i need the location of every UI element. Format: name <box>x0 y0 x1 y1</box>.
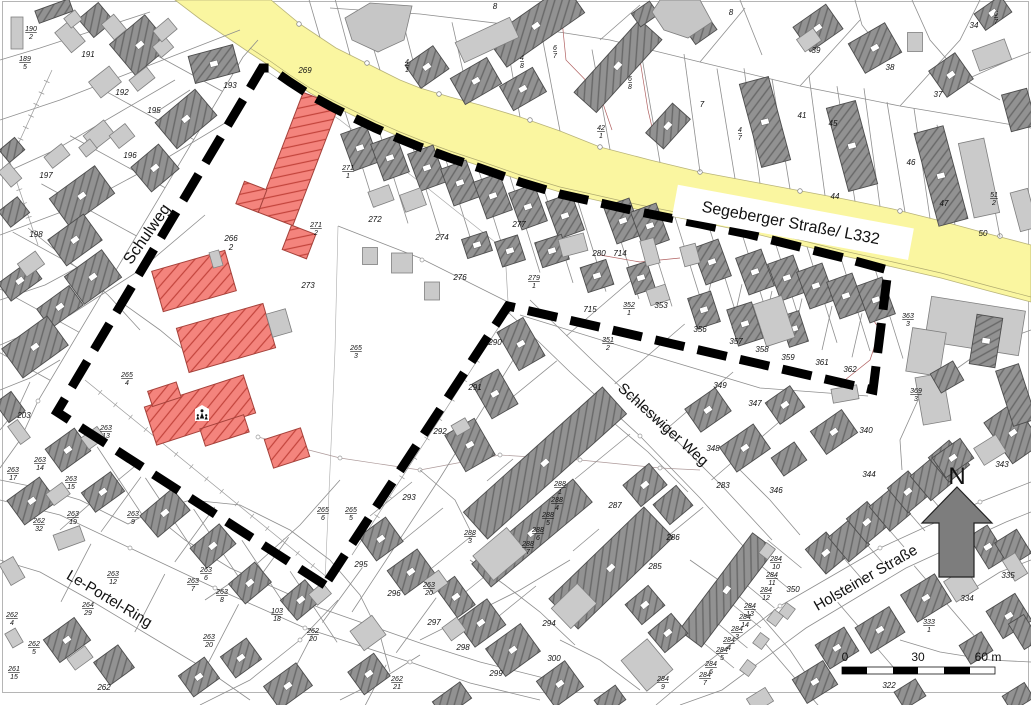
svg-text:3: 3 <box>914 396 918 403</box>
svg-text:357: 357 <box>729 337 743 346</box>
svg-text:197: 197 <box>39 171 53 180</box>
svg-text:10: 10 <box>772 564 780 571</box>
svg-text:358: 358 <box>755 345 769 354</box>
svg-text:41: 41 <box>798 111 807 120</box>
svg-text:284: 284 <box>656 676 669 683</box>
svg-text:9: 9 <box>661 684 665 691</box>
svg-text:362: 362 <box>843 365 857 374</box>
svg-text:1: 1 <box>532 283 536 290</box>
svg-text:715: 715 <box>583 305 597 314</box>
svg-text:38: 38 <box>886 63 895 72</box>
svg-text:284: 284 <box>715 647 728 654</box>
svg-text:6: 6 <box>994 11 998 18</box>
svg-text:299: 299 <box>488 669 503 678</box>
svg-text:284: 284 <box>743 603 756 610</box>
svg-text:3: 3 <box>468 538 472 545</box>
svg-text:274: 274 <box>434 233 449 242</box>
svg-text:277: 277 <box>511 220 526 229</box>
svg-text:196: 196 <box>123 151 137 160</box>
svg-text:273: 273 <box>300 281 315 290</box>
svg-text:263: 263 <box>66 511 79 518</box>
svg-text:288: 288 <box>553 481 566 488</box>
svg-text:271: 271 <box>341 165 354 172</box>
svg-text:198: 198 <box>29 230 43 239</box>
svg-text:30: 30 <box>911 650 925 664</box>
svg-text:5: 5 <box>349 515 353 522</box>
svg-text:192: 192 <box>115 88 129 97</box>
svg-text:262: 262 <box>306 628 319 635</box>
svg-text:283: 283 <box>715 481 730 490</box>
svg-text:4: 4 <box>738 127 742 134</box>
svg-text:2: 2 <box>605 345 610 352</box>
svg-text:1: 1 <box>599 133 603 140</box>
svg-text:8: 8 <box>220 597 224 604</box>
svg-text:284: 284 <box>765 572 778 579</box>
svg-text:21: 21 <box>392 684 401 691</box>
svg-text:6: 6 <box>536 535 540 542</box>
svg-text:348: 348 <box>706 444 720 453</box>
svg-text:266: 266 <box>223 234 238 243</box>
svg-text:20: 20 <box>308 636 317 643</box>
svg-text:203: 203 <box>16 411 31 420</box>
svg-text:263: 263 <box>64 476 77 483</box>
svg-text:6: 6 <box>321 515 325 522</box>
svg-text:333: 333 <box>923 619 935 626</box>
svg-text:5: 5 <box>23 64 27 71</box>
svg-text:350: 350 <box>786 585 800 594</box>
svg-text:4: 4 <box>520 55 524 62</box>
svg-text:32: 32 <box>35 526 43 533</box>
svg-text:298: 298 <box>455 643 470 652</box>
svg-text:286: 286 <box>665 533 680 542</box>
svg-text:2: 2 <box>991 200 996 207</box>
svg-text:284: 284 <box>738 614 751 621</box>
svg-text:284: 284 <box>759 587 772 594</box>
svg-text:1: 1 <box>627 310 631 317</box>
svg-text:3: 3 <box>354 353 358 360</box>
svg-text:263: 263 <box>422 582 435 589</box>
svg-text:290: 290 <box>487 338 502 347</box>
svg-text:42: 42 <box>597 125 605 132</box>
svg-text:44: 44 <box>831 192 840 201</box>
svg-text:262: 262 <box>27 641 40 648</box>
svg-text:369: 369 <box>910 388 922 395</box>
svg-text:714: 714 <box>613 249 627 258</box>
svg-text:47: 47 <box>940 199 949 208</box>
svg-text:2: 2 <box>313 230 318 237</box>
svg-text:288: 288 <box>463 530 476 537</box>
svg-text:3: 3 <box>735 634 739 641</box>
svg-text:262: 262 <box>32 518 45 525</box>
svg-text:263: 263 <box>33 457 46 464</box>
svg-text:17: 17 <box>9 475 18 482</box>
svg-text:20: 20 <box>424 590 433 597</box>
svg-text:50: 50 <box>979 229 988 238</box>
svg-text:19: 19 <box>69 519 77 526</box>
svg-text:3: 3 <box>906 321 910 328</box>
svg-text:2: 2 <box>28 34 33 41</box>
svg-text:189: 189 <box>19 56 31 63</box>
svg-text:296: 296 <box>386 589 401 598</box>
svg-text:265: 265 <box>344 507 357 514</box>
svg-text:190: 190 <box>25 26 37 33</box>
svg-text:5: 5 <box>546 520 550 527</box>
svg-text:352: 352 <box>623 302 635 309</box>
svg-text:6: 6 <box>204 575 208 582</box>
svg-text:300: 300 <box>547 654 561 663</box>
svg-text:9: 9 <box>131 519 135 526</box>
svg-text:359: 359 <box>781 353 795 362</box>
svg-text:15: 15 <box>10 674 18 681</box>
svg-text:103: 103 <box>271 608 283 615</box>
svg-text:1: 1 <box>927 627 931 634</box>
svg-text:349: 349 <box>713 381 727 390</box>
svg-text:60 m: 60 m <box>975 650 1002 664</box>
svg-text:0: 0 <box>842 650 849 664</box>
svg-text:269: 269 <box>297 66 312 75</box>
svg-text:6: 6 <box>628 76 632 83</box>
svg-text:14: 14 <box>36 465 44 472</box>
svg-text:8: 8 <box>520 63 524 70</box>
svg-text:8: 8 <box>493 2 498 11</box>
svg-text:265: 265 <box>316 507 329 514</box>
svg-text:280: 280 <box>591 249 606 258</box>
svg-text:361: 361 <box>815 358 828 367</box>
svg-text:279: 279 <box>527 275 540 282</box>
svg-text:195: 195 <box>147 106 161 115</box>
svg-text:285: 285 <box>647 562 662 571</box>
svg-text:11: 11 <box>768 580 775 587</box>
svg-text:291: 291 <box>467 383 481 392</box>
svg-text:265: 265 <box>349 345 362 352</box>
svg-text:5: 5 <box>720 655 724 662</box>
svg-text:363: 363 <box>902 313 914 320</box>
svg-text:272: 272 <box>367 215 382 224</box>
svg-text:20: 20 <box>204 642 213 649</box>
svg-text:15: 15 <box>67 484 75 491</box>
svg-text:347: 347 <box>748 399 762 408</box>
svg-text:2: 2 <box>228 243 234 252</box>
svg-text:263: 263 <box>186 578 199 585</box>
svg-text:284: 284 <box>704 661 717 668</box>
svg-text:343: 343 <box>995 460 1009 469</box>
svg-text:34: 34 <box>970 21 979 30</box>
svg-text:264: 264 <box>81 602 94 609</box>
svg-text:288: 288 <box>531 527 544 534</box>
svg-text:322: 322 <box>882 681 896 690</box>
svg-text:13: 13 <box>102 433 110 440</box>
svg-text:265: 265 <box>120 372 133 379</box>
svg-text:193: 193 <box>223 81 237 90</box>
svg-text:356: 356 <box>693 325 707 334</box>
svg-text:263: 263 <box>202 634 215 641</box>
svg-text:284: 284 <box>722 637 735 644</box>
svg-text:261: 261 <box>7 666 20 673</box>
svg-text:293: 293 <box>401 493 416 502</box>
svg-text:292: 292 <box>432 427 447 436</box>
svg-text:5: 5 <box>32 649 36 656</box>
svg-text:29: 29 <box>83 610 92 617</box>
svg-text:37: 37 <box>934 90 943 99</box>
svg-text:263: 263 <box>99 425 112 432</box>
svg-text:46: 46 <box>907 158 916 167</box>
svg-text:4: 4 <box>10 620 14 627</box>
svg-text:12: 12 <box>109 579 117 586</box>
svg-text:51: 51 <box>990 192 998 199</box>
svg-text:263: 263 <box>126 511 139 518</box>
svg-text:18: 18 <box>273 616 281 623</box>
svg-text:284: 284 <box>730 626 743 633</box>
svg-text:297: 297 <box>426 618 441 627</box>
svg-text:284: 284 <box>698 672 711 679</box>
svg-text:45: 45 <box>829 119 838 128</box>
svg-text:276: 276 <box>452 273 467 282</box>
svg-text:295: 295 <box>353 560 368 569</box>
svg-text:191: 191 <box>81 50 94 59</box>
svg-text:7: 7 <box>700 100 705 109</box>
svg-text:12: 12 <box>762 595 770 602</box>
svg-text:344: 344 <box>862 470 876 479</box>
svg-text:334: 334 <box>960 594 974 603</box>
svg-text:351: 351 <box>602 337 614 344</box>
svg-text:263: 263 <box>106 571 119 578</box>
svg-text:4: 4 <box>555 505 559 512</box>
svg-text:1: 1 <box>558 489 562 496</box>
svg-text:340: 340 <box>859 426 873 435</box>
svg-text:346: 346 <box>769 486 783 495</box>
svg-text:287: 287 <box>607 501 622 510</box>
svg-text:284: 284 <box>769 556 782 563</box>
svg-text:4: 4 <box>405 59 409 66</box>
svg-text:263: 263 <box>215 589 228 596</box>
svg-text:263: 263 <box>199 567 212 574</box>
svg-text:4: 4 <box>125 380 129 387</box>
svg-text:262: 262 <box>390 676 403 683</box>
svg-text:288: 288 <box>541 512 554 519</box>
svg-text:1: 1 <box>405 67 409 74</box>
svg-text:39: 39 <box>812 46 821 55</box>
svg-text:335: 335 <box>1001 571 1015 580</box>
svg-text:8: 8 <box>628 84 632 91</box>
svg-text:262: 262 <box>5 612 18 619</box>
svg-text:288: 288 <box>521 541 534 548</box>
svg-text:8: 8 <box>729 8 734 17</box>
svg-text:271: 271 <box>309 222 322 229</box>
svg-text:263: 263 <box>6 467 19 474</box>
svg-text:6: 6 <box>553 45 557 52</box>
svg-text:1: 1 <box>346 173 350 180</box>
svg-text:294: 294 <box>541 619 556 628</box>
svg-text:N: N <box>948 463 965 490</box>
svg-text:353: 353 <box>654 301 668 310</box>
svg-text:288: 288 <box>550 497 563 504</box>
svg-text:262: 262 <box>96 683 111 692</box>
